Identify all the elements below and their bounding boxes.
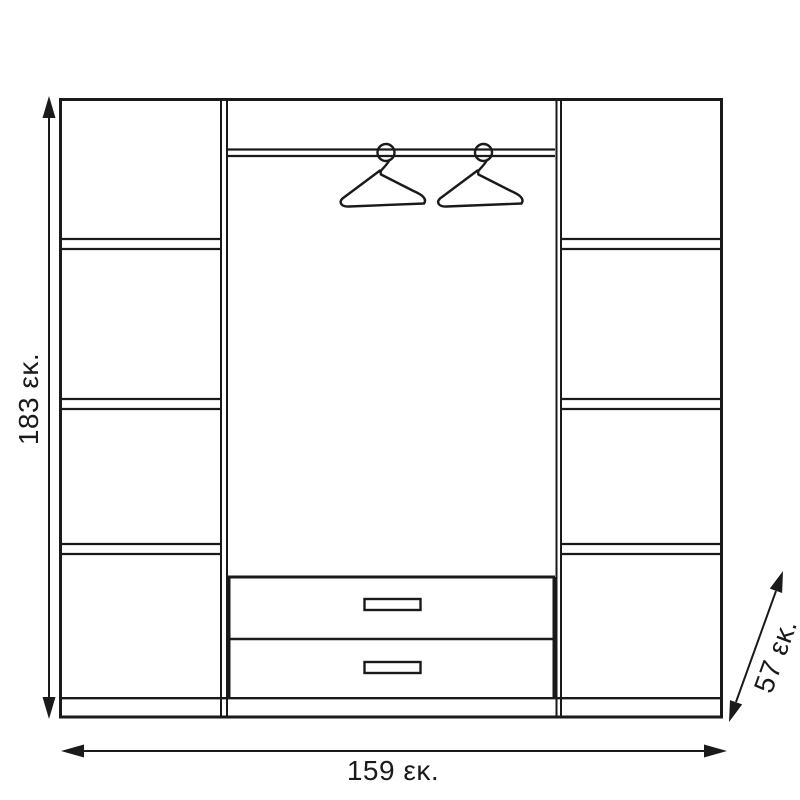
- drawer-handle: [365, 662, 421, 673]
- left-column-shelves: [62, 239, 220, 554]
- width-dimension-label: 159 εκ.: [333, 756, 453, 786]
- hanging-rod: [228, 150, 555, 157]
- diagram-linework: [0, 0, 800, 800]
- drawer-block: [228, 577, 555, 697]
- wardrobe-dimension-diagram: 183 εκ. 159 εκ. 57 εκ.: [0, 0, 800, 800]
- height-dimension-arrow: [43, 96, 56, 719]
- height-dimension-label: 183 εκ.: [14, 343, 44, 455]
- drawer-handle: [365, 599, 421, 610]
- left-partition: [221, 101, 227, 716]
- hanger-icon: [341, 144, 425, 207]
- hanger-icon: [438, 144, 522, 207]
- right-column-shelves: [562, 239, 720, 554]
- right-partition: [557, 101, 562, 716]
